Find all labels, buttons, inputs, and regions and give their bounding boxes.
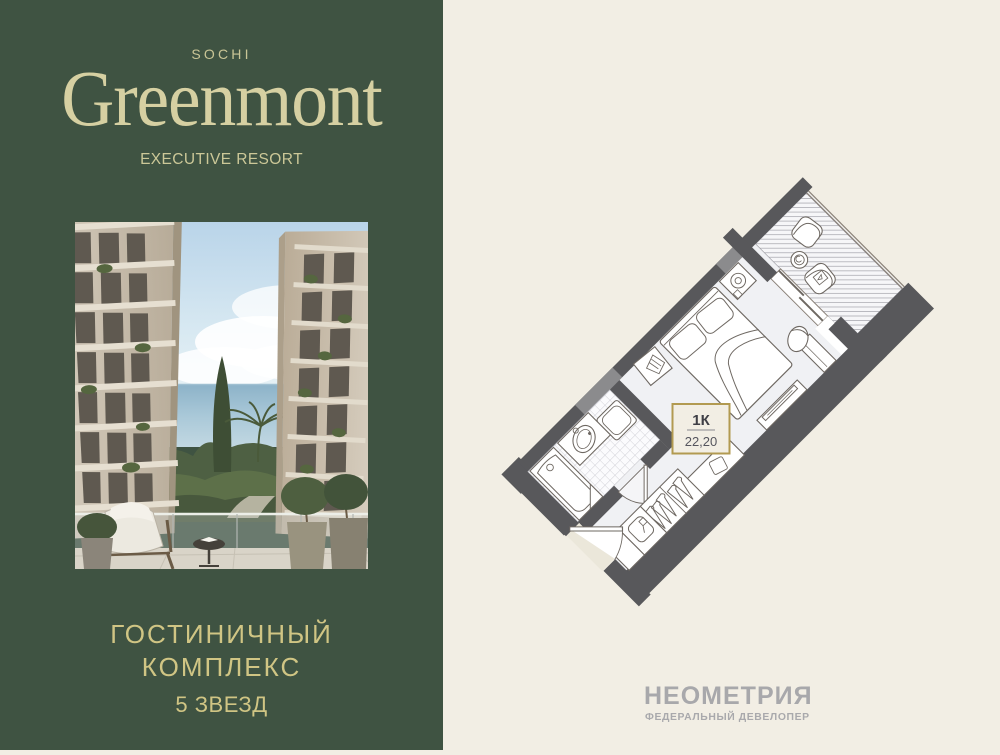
svg-text:1К: 1К bbox=[692, 412, 710, 429]
svg-text:22,20: 22,20 bbox=[685, 434, 718, 449]
